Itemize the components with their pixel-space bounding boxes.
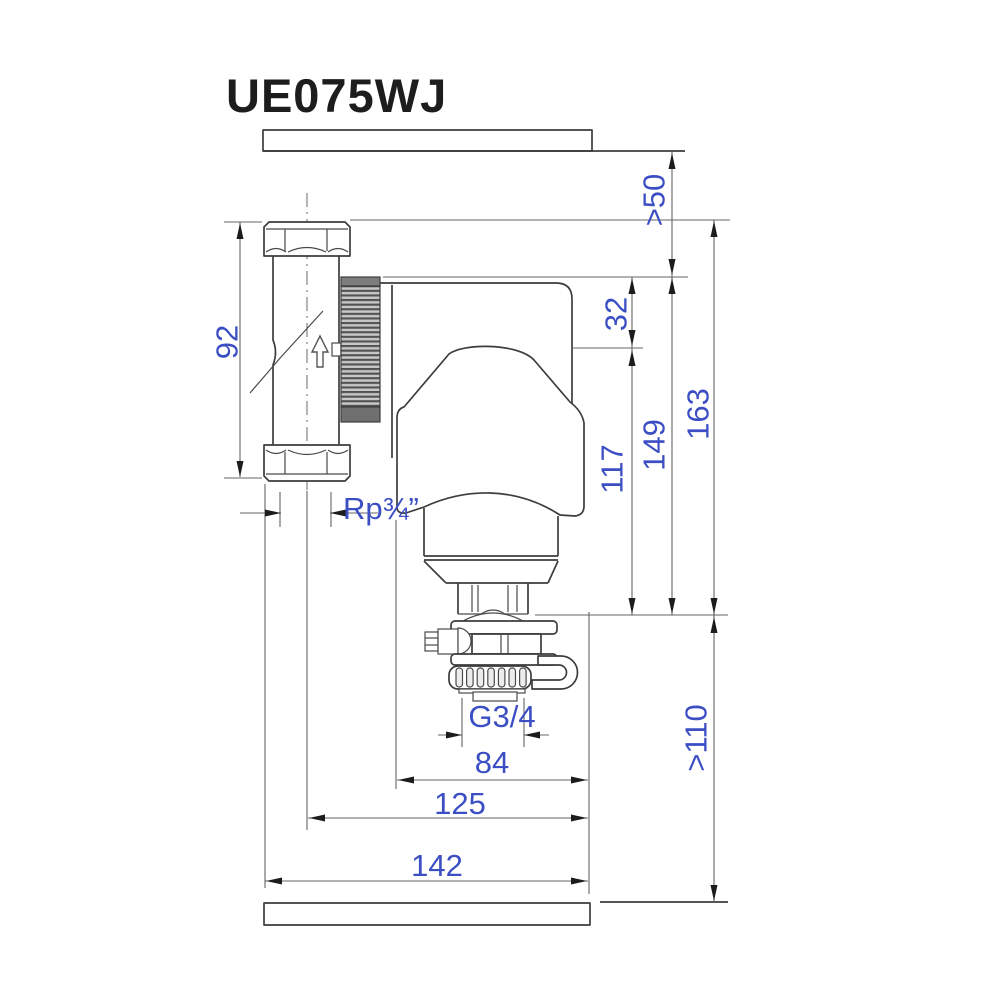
drain-wheel-ridges: [456, 668, 526, 687]
drawing-title: UE075WJ: [226, 69, 447, 122]
lower-body: [424, 508, 558, 614]
valve-body: [472, 634, 541, 654]
dim-overall-width: 142: [411, 848, 463, 883]
dim-cover-offset: 32: [599, 297, 634, 331]
spigot-collar: [438, 629, 458, 654]
pipe-left-edge: [273, 256, 276, 445]
technical-drawing-page: UE075WJ >50 92 32 117 149 163 >110 Rp¾” …: [0, 0, 1000, 1000]
dim-total-height: 163: [681, 388, 716, 440]
top-union-nut: [264, 222, 350, 256]
dim-clearance-below: >110: [679, 704, 714, 772]
ring-clip: [332, 343, 341, 356]
dim-pipe-thread: Rp¾”: [343, 491, 419, 526]
dim-clearance-above: >50: [637, 174, 672, 227]
valve-handle: [532, 656, 578, 689]
dim-body-width: 84: [475, 745, 509, 780]
flow-up-arrow-icon: [312, 336, 328, 367]
dim-union-length: 92: [210, 325, 245, 359]
drain-valve: [425, 613, 578, 701]
bottom-wall-hatch: [264, 903, 590, 925]
dim-mid-height: 149: [637, 419, 672, 471]
top-wall-hatch: [263, 130, 592, 151]
pipe-assembly: [250, 193, 350, 490]
bottom-union-nut: [264, 445, 350, 481]
dim-body-height: 117: [595, 444, 630, 493]
dimension-drawing: UE075WJ >50 92 32 117 149 163 >110 Rp¾” …: [0, 0, 1000, 1000]
dim-pipe-center-width: 125: [434, 786, 486, 821]
dim-drain-thread: G3/4: [468, 699, 535, 734]
spigot-end: [425, 632, 438, 651]
